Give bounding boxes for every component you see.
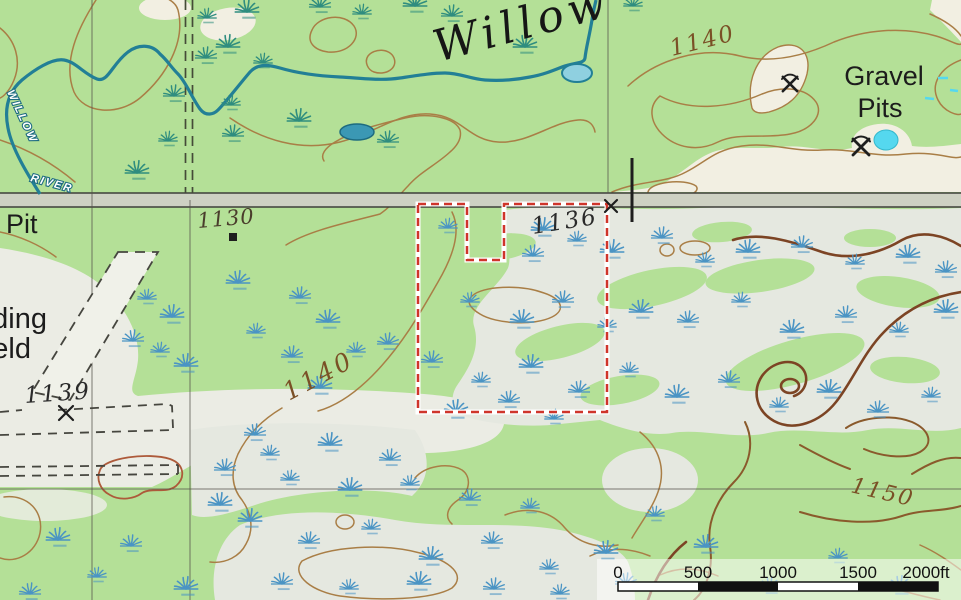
- pit-label: Pit: [6, 209, 38, 239]
- gravel-area-pond: [874, 130, 898, 150]
- scale-label-500: 500: [684, 563, 712, 582]
- scale-label-0: 0: [613, 563, 622, 582]
- gravel-pits-label-line2: Pits: [857, 93, 902, 123]
- water-dash-icon: [950, 90, 958, 91]
- scale-bar: 0 500 1000 1500 2000ft: [597, 559, 961, 600]
- river-pond: [562, 64, 592, 82]
- building-icon: [229, 233, 237, 241]
- spot-label-1130: 1130: [196, 204, 255, 233]
- scale-label-1500: 1500: [839, 563, 877, 582]
- spot-label-1139: 1139: [24, 378, 92, 409]
- map-viewport[interactable]: Willow WILLOW RIVER Gravel Pits Pit ding…: [0, 0, 961, 600]
- field-label-partial-2: eld: [0, 333, 31, 365]
- topo-map-canvas[interactable]: Willow WILLOW RIVER Gravel Pits Pit ding…: [0, 0, 961, 600]
- scale-label-2000ft: 2000ft: [902, 563, 950, 582]
- water-dash-icon: [925, 98, 934, 99]
- scale-label-1000: 1000: [759, 563, 797, 582]
- road-east-west: [0, 193, 961, 207]
- small-dark-pond: [340, 124, 374, 140]
- gravel-pits-label-line1: Gravel: [844, 61, 924, 91]
- field-label-partial-1: ding: [0, 303, 47, 335]
